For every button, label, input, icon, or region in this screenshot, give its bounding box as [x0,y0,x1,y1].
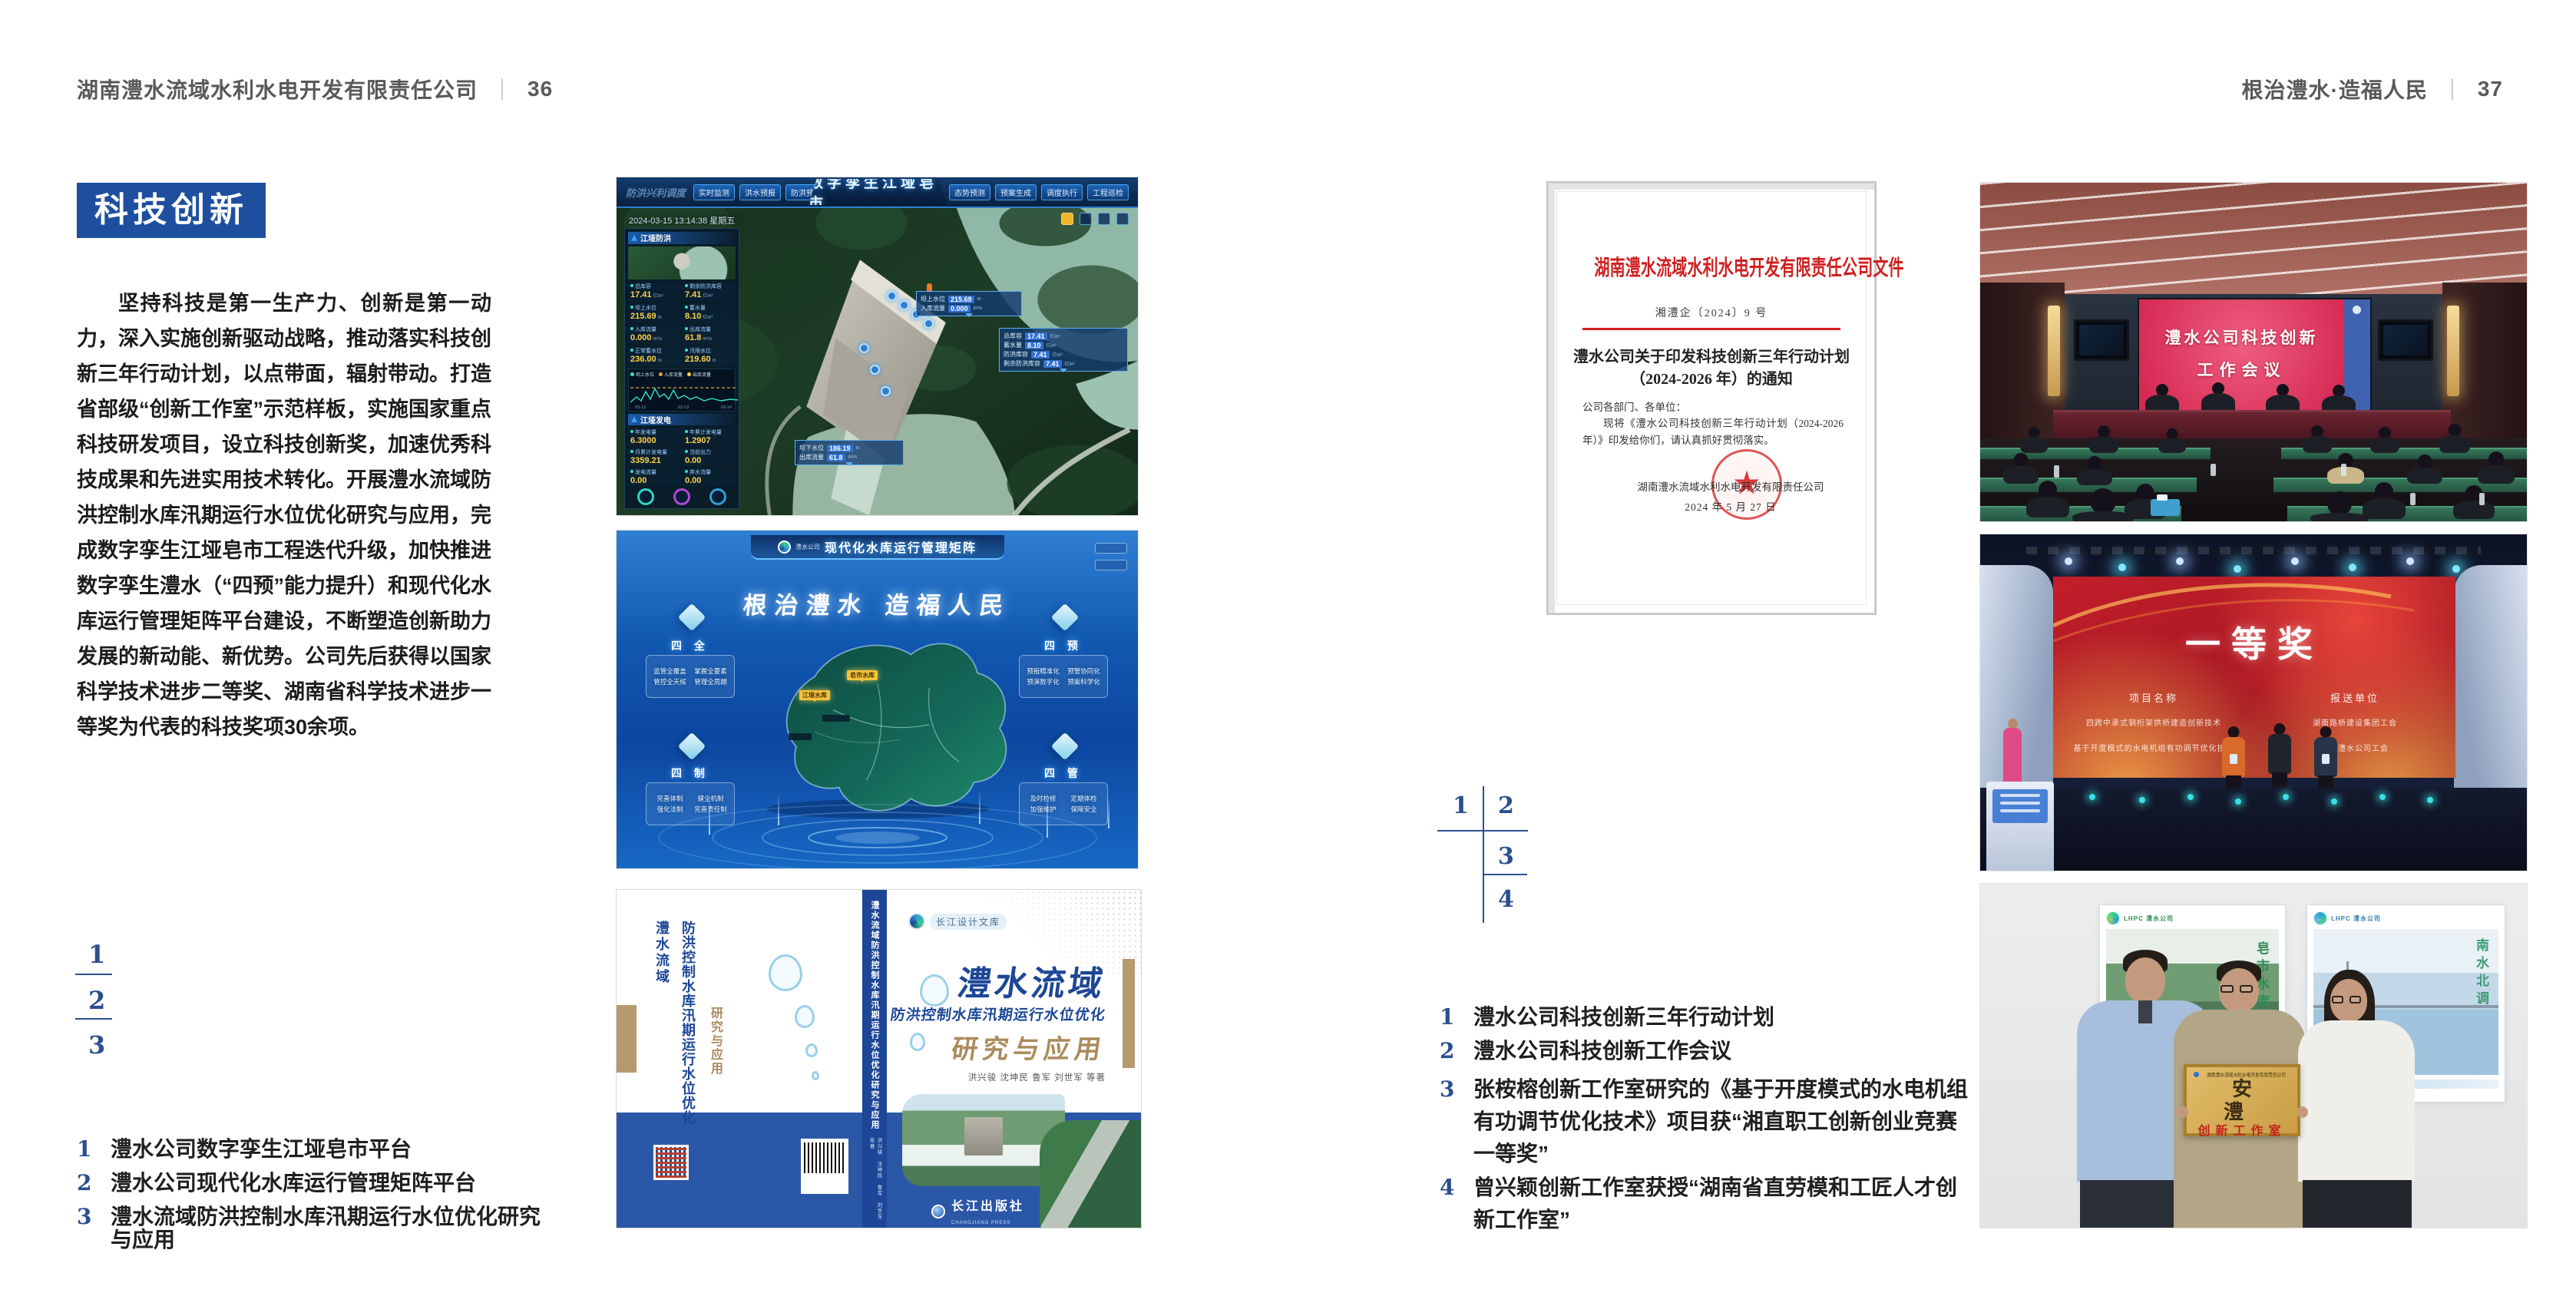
figure-index-4: 4 [1498,886,1514,913]
stat-label: 年发电量 [630,428,679,436]
light-pillar [709,795,710,835]
stat-value: 61.8m³/s [685,333,733,344]
stat-label: 弃水流量 [685,468,733,476]
stat-unit: m³/s [703,337,712,342]
dashboard-datetime: 2024-03-15 13:14:38 星期五 [629,214,735,226]
caption-number: 3 [1440,1073,1460,1170]
toolbar-pill [1095,560,1127,570]
matrix-title: 现代化水库运行管理矩阵 [825,537,977,556]
moving-head-light [2138,795,2147,808]
stat-label: 发电流量 [630,468,679,476]
panel-item: 预报精准化 [1024,666,1062,676]
stat-cell: 弃水流量 0.00 [683,468,736,486]
front-tan-bar [1123,959,1135,1068]
figure-index-2: 2 [88,986,105,1015]
dashboard-tab: 洪水预报 [739,184,781,200]
figure-index-3: 3 [88,1030,105,1060]
stage-spotlight [2176,557,2184,565]
lhpc-logo-icon [2106,911,2120,925]
callout-value: 186.19 [827,445,853,452]
stage-spotlight [2349,564,2356,571]
caption-row: 2 澧水公司科技创新工作会议 [1440,1040,1977,1063]
stat-label: 坝上水位 [630,304,679,312]
panel-item: 预演数字化 [1024,677,1062,686]
callout-label: 坝上水位 [921,295,945,303]
wall-lamp [2048,306,2060,396]
stat-label: 总库容 [630,283,679,290]
panel-name: 四 全 [647,638,733,653]
plaque-logo-icon [2194,1072,2199,1077]
callout-unit: 亿m³ [1053,351,1063,358]
audience-person [2303,425,2332,453]
column-org: 报送单位 [2254,690,2455,705]
panel-item: 管控全天候 [651,677,689,686]
stat-label: 当前出力 [685,448,733,456]
polo-collar [2138,1000,2152,1023]
panel-name: 四 预 [1020,638,1106,653]
light-pillar [1108,796,1109,828]
callout-downstream: 坝下水位 186.19 m 出库流量 61.8 m³/s [795,440,904,465]
wall-lamp [2447,306,2459,396]
stat-unit: m³/s [653,337,663,342]
glasses-icon [2332,996,2343,1003]
panel-items: 预报精准化预警协同化预演数字化预案科学化 [1019,655,1108,698]
callout-unit: m³/s [974,306,983,311]
caption-row: 4 曾兴颖创新工作室获授“湖南省直劳模和工匠人才创新工作室” [1440,1172,1977,1236]
gauge-icon [673,488,690,505]
stat-unit: m [658,316,662,320]
document-signer: 湖南澧水流域水利水电开发有限责任公司 [1595,478,1867,494]
callout-row: 坝下水位 186.19 m [799,444,899,452]
project-name: 四跨中承式钢桁架拱桥建造创新技术 [2053,716,2254,728]
stat-value: 3359.21 [630,456,679,465]
figure-index-1: 1 [1453,792,1469,819]
stat-value: 0.00 [685,456,733,465]
audience-person [2478,451,2515,484]
publisher-logo-icon [931,1205,945,1218]
dashboard-tab: 态势预测 [949,184,990,200]
company-name: 湖南澧水流域水利水电开发有限责任公司 [77,74,478,104]
water-drop-graphic [805,1043,818,1057]
stage-truss [2026,547,2481,554]
stat-label: 出库流量 [685,326,733,333]
caption-number: 1 [77,1138,97,1161]
stat-label: 正常蓄水位 [630,347,679,355]
front-title-sub: 防洪控制水库汛期运行水位优化 [889,1003,1107,1024]
hand [2177,1106,2188,1118]
layers-icon [1080,213,1092,225]
panel-item: 预警协同化 [1065,666,1103,676]
audience-person [2363,482,2406,519]
wall-tv [2378,319,2433,361]
panel-icon [678,732,706,761]
callout-upstream: 坝上水位 215.69 m 入库流量 0.000 m³/s [916,291,1022,316]
front-title-region: 澧水流域 [955,956,1109,1005]
water-bottle [2054,465,2059,478]
callout-unit: m [856,446,860,451]
right-captions: 1 澧水公司科技创新三年行动计划 2 澧水公司科技创新工作会议 3 张桉榕创新工… [1440,1006,1977,1238]
left-captions: 1 澧水公司数字孪生江垭皂市平台 2 澧水公司现代化水库运行管理矩阵平台 3 澧… [77,1138,553,1262]
water-drop-graphic [812,1071,819,1080]
reservoir-label: 皂市水库 [847,670,878,680]
screen-title-line2: 工作会议 [2139,358,2344,381]
panel-icon [1051,732,1080,761]
host-podium [1986,782,2054,871]
callout-label: 剩余防洪库容 [1004,359,1040,368]
award-column-headers: 项目名称 报送单位 [2053,690,2455,705]
figure-index-3: 3 [1498,843,1514,870]
water-drop-graphic [920,974,949,1007]
gate-marker [924,319,934,329]
callout-value: 7.41 [1043,360,1062,368]
callout-unit: 亿m³ [1047,342,1057,349]
stat-unit: 亿m³ [703,316,713,320]
company-logo-icon [778,541,791,554]
gate-marker [859,343,869,353]
gate-marker [887,291,897,301]
gate-marker [870,365,880,375]
poster-right-caption: 南水北调 [2472,938,2491,1009]
caption-text: 澧水公司科技创新工作会议 [1473,1040,1731,1063]
dashboard-tab: 调度执行 [1041,184,1083,200]
caption-row: 3 澧水流域防洪控制水库汛期运行水位优化研究与应用 [77,1205,553,1251]
caption-text: 澧水公司科技创新三年行动计划 [1473,1006,1774,1029]
screen-title-line1: 澧水公司科技创新 [2139,326,2344,349]
dashboard-tab: 实时监测 [693,184,735,200]
callout-label: 入库流量 [921,304,945,312]
figure-award-photo: 一等奖 项目名称 报送单位 四跨中承式钢桁架拱桥建造创新技术基于开度模式的水电机… [1979,534,2528,871]
dashboard-tab: 工程巡检 [1087,184,1129,200]
panel-item: 预案科学化 [1065,677,1103,686]
screen-logo-dot [2353,306,2361,314]
back-title-tail: 研究与应用 [706,1007,724,1076]
award-rows: 四跨中承式钢桁架拱桥建造创新技术基于开度模式的水电机组有功调节优化技术 湖南路桥… [2053,716,2455,767]
stat-cell: 出库流量 61.8m³/s [683,325,736,345]
panel-name: 四 管 [1020,765,1106,781]
stat-cell: 当前出力 0.00 [683,448,736,466]
caption-text: 张桉榕创新工作室研究的《基于开度模式的水电机组有功调节优化技术》项目获“湘直职工… [1473,1073,1969,1170]
audience-person [2453,485,2495,519]
moving-head-light [2426,795,2435,808]
caption-number: 2 [1440,1040,1460,1063]
stage-spotlight [2065,557,2072,565]
alert-icon [1116,213,1129,225]
panel-name: 四 制 [647,765,733,781]
power-stats-grid: 年发电量 6.3000 年累计发电量 1.2907 月累计发电量 3359.21 [628,428,736,486]
glasses-icon [2221,985,2234,993]
caption-number: 2 [77,1172,97,1195]
book-spine: 澧水流域防洪控制水库汛期运行水位优化研究与应用 洪兴骏 沈坤民 鲁军 刘世军 等… [862,890,887,1228]
dam-thumbnail [628,246,736,279]
callout-row: 防洪库容 7.41 亿m³ [1004,350,1123,359]
light-pillar [1047,793,1048,838]
callout-label: 出库流量 [799,453,824,461]
callout-row: 入库流量 0.000 m³/s [921,304,1017,312]
audience-person [2003,453,2039,484]
gauge-icon [709,488,726,505]
locate-icon [1098,213,1110,225]
audience-person-foreground [2072,488,2134,522]
water-bottle [2479,493,2485,505]
panel-item: 掌握全要素 [692,666,729,676]
column-project: 项目名称 [2053,690,2254,705]
panel-item: 管理全周期 [692,677,729,686]
caption-text: 曾兴颖创新工作室获授“湖南省直劳模和工匠人才创新工作室” [1473,1172,1969,1236]
innovation-studio-plaque: 湖南澧水流域水利水电开发有限责任公司 安 澧 创新工作室 [2184,1064,2300,1136]
stat-value: 0.00 [630,476,679,485]
document-number: 湘澧企〔2024〕9 号 [1549,305,1874,320]
stage-spotlight [2406,557,2414,565]
separator: ｜ [2442,74,2464,104]
moving-head-light [2186,792,2195,805]
stage-spotlight [2452,565,2460,573]
stat-label: 汛限水位 [685,347,733,355]
back-title-region: 澧水流域 [652,921,672,985]
series-badge-text: 长江设计文库 [930,914,1007,930]
audience-person [2158,428,2186,453]
callout-label: 蓄水量 [1004,341,1022,349]
stat-cell: 蓄水量 8.10亿m³ [683,303,736,323]
document-title: 澧水公司关于印发科技创新三年行动计划 （2024-2026 年）的通知 [1549,346,1874,391]
stat-value: 215.69m [630,312,679,322]
magazine-spread: 湖南澧水流域水利水电开发有限责任公司 ｜ 36 根治澧水·造福人民 ｜ 37 科… [0,0,2576,1306]
reservoir-label: 江垭水库 [799,690,830,700]
caption-text: 澧水公司数字孪生江垭皂市平台 [111,1138,412,1161]
plaque-subtitle: 创新工作室 [2191,1124,2293,1139]
publisher-name-en: CHANGJIANG PRESS [951,1221,1010,1225]
stage-spotlight [2234,565,2241,573]
front-cover-photo-2 [1040,1120,1141,1228]
water-drop-graphic [910,1033,925,1051]
dashboard-title-plate: 数字孪生江垭皂市 [809,179,947,205]
plaque-title: 安 澧 [2191,1078,2293,1124]
gate-marker [899,300,909,310]
front-authors: 洪兴骏 沈坤民 鲁军 刘世军 等著 [968,1071,1106,1083]
document-date: 2024 年 5 月 27 日 [1595,498,1867,514]
running-head-left: 湖南澧水流域水利水电开发有限责任公司 ｜ 36 [77,74,553,104]
poster-logo-text: LHPC 澧水公司 [2331,914,2381,923]
flood-panel-title: 江垭防洪 [628,232,736,244]
document-body: 现将《澧水公司科技创新三年行动计划（2024-2026 年）》印发给你们，请认真… [1582,415,1844,449]
document-red-rule [1582,328,1840,330]
stat-cell: 月累计发电量 3359.21 [628,448,681,466]
dashboard-left-panel: 江垭防洪 总库容 17.41亿m³ 剩余防洪库容 7.41亿m³ 坝上水位 [624,228,739,509]
page-number-left: 36 [527,77,553,101]
station-marker [822,715,850,722]
moving-head-light [2378,792,2387,805]
slogan: 根治澧水·造福人民 [2242,74,2428,104]
award-title: 一等奖 [2053,617,2455,667]
callout-unit: m³/s [848,455,858,460]
water-bottle [2211,464,2216,476]
stat-label: 年累计发电量 [685,428,733,436]
caption-number: 4 [1440,1172,1460,1236]
index-divider [1483,786,1484,923]
water-drop-graphic [795,1005,815,1028]
toolbar-pill [1095,543,1127,554]
callout-row: 坝上水位 215.69 m [921,295,1017,303]
callout-row: 剩余防洪库容 7.41 亿m³ [1004,359,1123,368]
hologram-rings [617,784,1139,868]
callout-value: 7.41 [1031,351,1050,359]
stage-side-panel [2454,565,2527,818]
dashboard-corner-label: 防洪兴利调度 [626,185,686,200]
spine-title: 澧水流域防洪控制水库汛期运行水位优化研究与应用 [868,901,881,1130]
spine-authors: 洪兴骏 沈坤民 鲁军 刘世军 等著 [867,1138,882,1222]
publisher-name: 长江出版社 [951,1199,1024,1213]
stat-cell: 年累计发电量 1.2907 [683,428,736,446]
section-body-paragraph: 坚持科技是第一生产力、创新是第一动力，深入实施创新驱动战略，推动落实科技创新三年… [77,286,491,745]
glasses-icon [2240,985,2253,993]
section-title: 科技创新 [77,183,266,238]
moving-head-light [2330,797,2339,809]
stage-spotlight [2118,564,2126,571]
stat-unit: m [713,359,716,363]
wall-tv [2074,319,2129,361]
callout-label: 总库容 [1004,332,1022,340]
stage-floor [1980,788,2527,871]
stat-cell: 汛限水位 219.60m [683,346,736,366]
panel-item: 监管全覆盖 [651,666,689,676]
trousers [2303,1180,2412,1228]
stat-value: 17.41亿m³ [630,290,679,301]
power-panel-title: 江垭发电 [628,414,736,426]
audience-person [2089,425,2118,453]
caption-row: 2 澧水公司现代化水库运行管理矩阵平台 [77,1172,553,1195]
stat-value: 1.2907 [685,436,733,445]
stat-cell: 剩余防洪库容 7.41亿m³ [683,282,736,302]
callout-value: 17.41 [1025,332,1047,340]
chart-x-ticks: 03-1203-1303-14 [635,405,732,410]
callout-value: 8.10 [1025,342,1043,349]
station-marker [789,733,812,740]
chart-lines [630,377,738,409]
publisher-mark: 长江出版社 CHANGJIANG PRESS [931,1195,1024,1228]
stat-unit: 亿m³ [653,294,663,299]
flood-stats-grid: 总库容 17.41亿m³ 剩余防洪库容 7.41亿m³ 坝上水位 215.69m [628,282,736,366]
tick-label: 03-12 [635,405,646,410]
matrix-logo-text: 澧水公司 [795,544,820,551]
index-divider [75,1018,112,1020]
gauge-icon [637,488,654,505]
front-title-tail: 研究与应用 [950,1028,1109,1066]
tissue-box [2151,499,2180,516]
running-head-right: 根治澧水·造福人民 ｜ 37 [2242,74,2504,104]
stat-unit: m [658,359,662,363]
callout-storage: 总库容 17.41 亿m³ 蓄水量 8.10 亿m³ 防洪库容 7.41 亿m³ [999,328,1128,372]
callout-value: 215.69 [948,296,974,303]
back-title-sub: 防洪控制水库汛期运行水位优化 [678,921,698,1125]
callout-label: 防洪库容 [1004,350,1028,359]
dashboard-tab: 预案生成 [995,184,1037,200]
light-pillar [979,790,980,824]
moving-head-light [2088,792,2097,805]
stat-value: 0.00 [685,476,733,485]
figure-digital-twin-dashboard: 防洪兴利调度 实时监测洪水预报防洪预警 数字孪生江垭皂市 态势预测预案生成调度执… [616,177,1139,516]
audience-person [2077,456,2112,485]
figure-book-cover: 澧水流域 防洪控制水库汛期运行水位优化 研究与应用 澧水流域防洪控制水库汛期运行… [616,889,1142,1228]
callout-value: 0.000 [948,305,971,312]
audience-person-foreground [2310,491,2369,522]
series-badge: 长江设计文库 [908,913,1007,930]
caption-row: 1 澧水公司科技创新三年行动计划 [1440,1006,1977,1029]
figure-meeting-photo: 澧水公司科技创新 工作会议 [1979,182,2528,522]
audience-person [2026,481,2069,517]
qr-code [653,1145,689,1180]
index-divider [1483,874,1527,875]
user-icon [1061,213,1073,225]
dashboard-toolbar-icons [1061,213,1129,225]
stat-label: 剩余防洪库容 [685,283,733,290]
barcode [801,1139,848,1194]
caption-text: 澧水公司现代化水库运行管理矩阵平台 [111,1172,476,1195]
moving-head-light [2234,797,2243,809]
award-led-screen: 一等奖 项目名称 报送单位 四跨中承式钢桁架拱桥建造创新技术基于开度模式的水电机… [2053,577,2455,778]
callout-unit: 亿m³ [1065,360,1075,367]
glasses-icon [2349,996,2361,1003]
callout-label: 坝下水位 [799,444,824,452]
tick-label: 03-14 [721,405,732,410]
water-bottle [2410,493,2416,505]
dashboard-tabs-left: 实时监测洪水预报防洪预警 [693,184,827,200]
audience-person [2407,455,2442,484]
panel-items: 监管全覆盖掌握全要素管控全天候管理全周期 [646,655,735,698]
stat-label: 蓄水量 [685,304,733,312]
lhpc-logo-icon [2313,911,2327,925]
stat-value: 219.60m [685,355,733,365]
stat-cell: 正常蓄水位 236.00m [628,346,681,366]
caption-row: 3 张桉榕创新工作室研究的《基于开度模式的水电机组有功调节优化技术》项目获“湘直… [1440,1073,1977,1170]
stat-unit: 亿m³ [703,294,713,299]
figure-group-photo: LHPC 澧水公司 皂市水库 LHPC 澧水公司 南水北调 [1979,883,2528,1228]
caption-number: 1 [1440,1006,1460,1029]
generator-gauges [628,488,736,505]
caption-text: 澧水流域防洪控制水库汛期运行水位优化研究与应用 [111,1205,553,1251]
matrix-header: 澧水公司 现代化水库运行管理矩阵 [751,535,1004,560]
stat-cell: 总库容 17.41亿m³ [628,282,681,302]
gate-marker [881,386,891,396]
stat-label: 月累计发电量 [630,448,679,456]
stat-cell: 年发电量 6.3000 [628,428,681,446]
stat-cell: 入库流量 0.000m³/s [628,325,681,345]
stat-value: 236.00m [630,355,679,365]
plaque-header: 湖南澧水流域水利水电开发有限责任公司 [2207,1070,2286,1078]
callout-unit: m [977,297,981,302]
audience-person [2439,424,2470,453]
back-cover-tan-block [617,1005,637,1073]
document-letterhead: 湖南澧水流域水利水电开发有限责任公司文件 [1594,251,1828,282]
audience-person [2020,427,2048,453]
changjiang-logo-icon [908,913,925,930]
callout-value: 61.8 [827,454,845,461]
stat-value: 6.3000 [630,436,679,445]
dashboard-tabs-right: 态势预测预案生成调度执行工程巡检 [949,184,1129,200]
index-divider [1437,830,1528,832]
figure-matrix-dashboard: 澧水公司 现代化水库运行管理矩阵 根治澧水 造福人民 江垭水库 皂市水库 四 全 [616,530,1139,869]
figure-official-document: 湖南澧水流域水利水电开发有限责任公司文件 湘澧企〔2024〕9 号 澧水公司关于… [1547,182,1876,614]
callout-row: 出库流量 61.8 m³/s [799,453,899,461]
hand [2297,1106,2308,1118]
audience-person [2370,427,2399,453]
water-drop-graphic [769,954,802,991]
stage-spotlight [2291,557,2299,565]
stat-value: 8.10亿m³ [685,312,733,322]
stat-value: 7.41亿m³ [685,290,733,301]
caption-number: 3 [77,1205,97,1251]
figure-index-1: 1 [88,940,105,969]
index-divider [75,974,112,975]
stat-label: 入库流量 [630,326,679,333]
